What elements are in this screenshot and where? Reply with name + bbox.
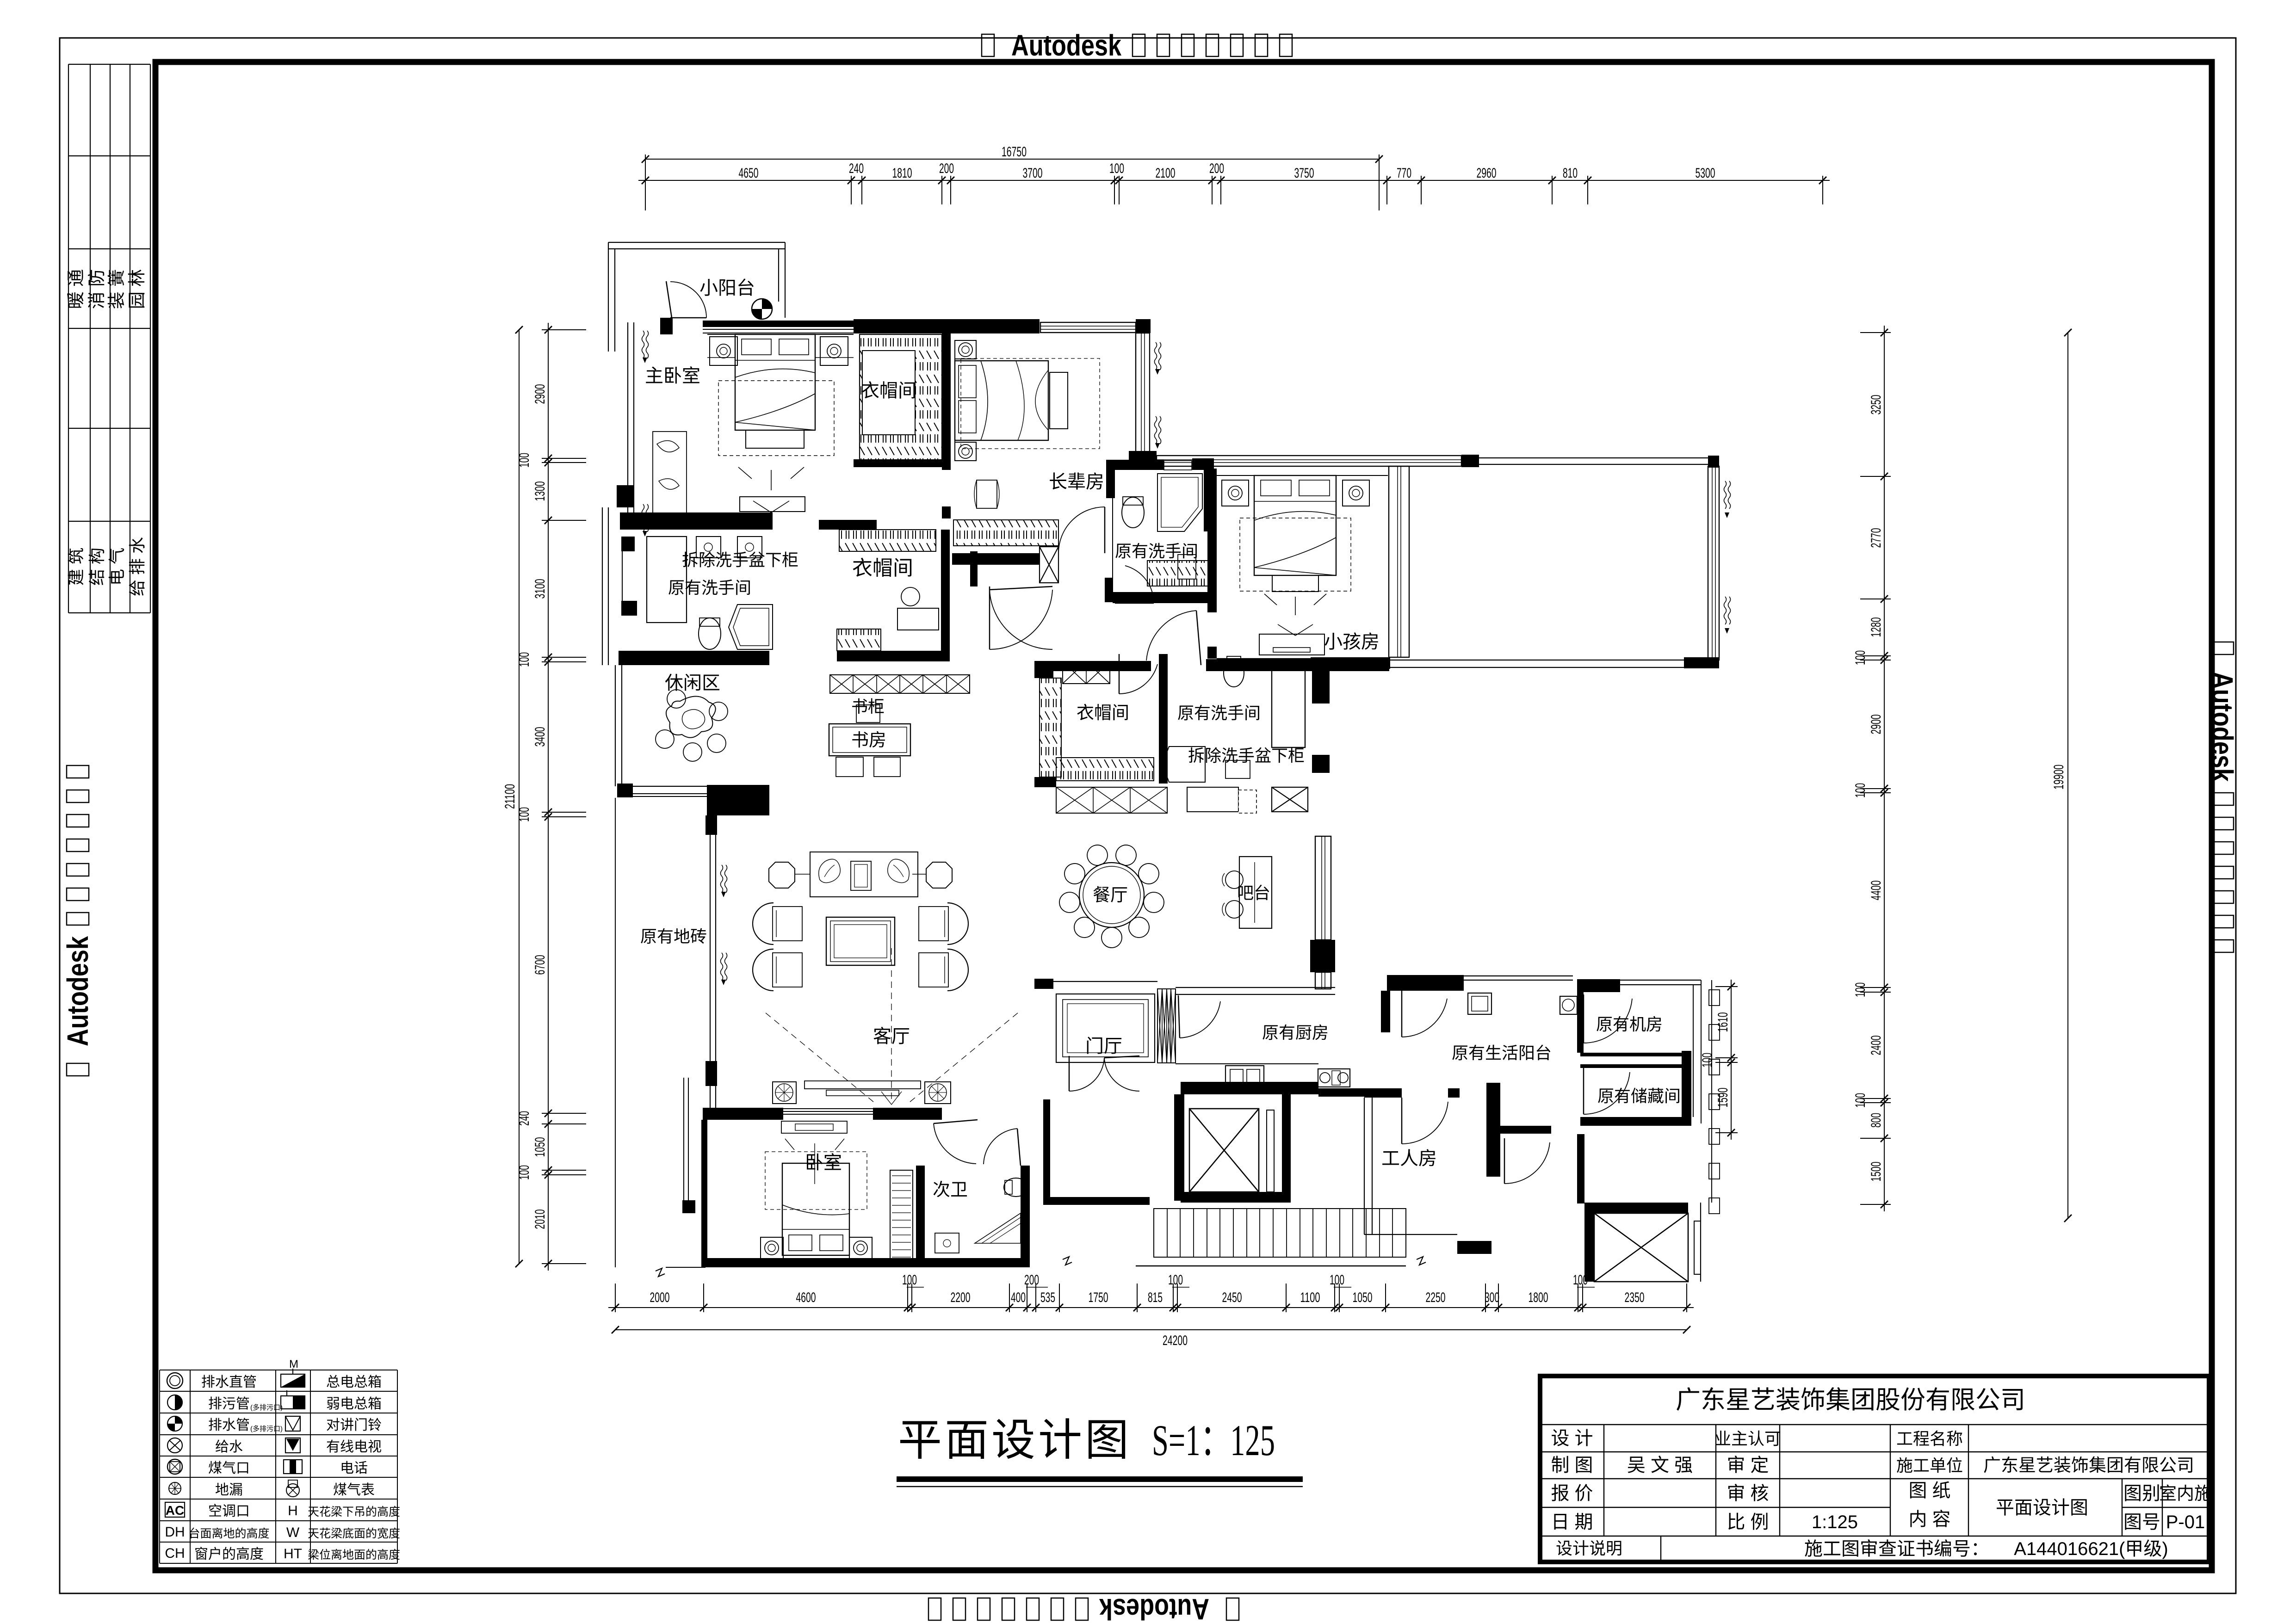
svg-text:图号: 图号	[2123, 1512, 2160, 1532]
svg-text:5300: 5300	[1696, 166, 1715, 181]
svg-text:1050: 1050	[532, 1137, 548, 1157]
svg-text:主卧室: 主卧室	[645, 366, 700, 386]
svg-text:衣帽间: 衣帽间	[852, 557, 913, 580]
svg-text:空调口: 空调口	[208, 1504, 250, 1519]
svg-text:图别: 图别	[2123, 1483, 2160, 1504]
svg-text:21100: 21100	[502, 784, 518, 809]
svg-text:小阳台: 小阳台	[699, 278, 755, 298]
svg-text:排水管: 排水管	[208, 1418, 250, 1433]
svg-text:排污管: 排污管	[208, 1396, 250, 1412]
svg-text:1100: 1100	[1300, 1290, 1320, 1305]
svg-text:100: 100	[1700, 1053, 1715, 1068]
svg-text:HT: HT	[284, 1546, 302, 1561]
svg-text:内 容: 内 容	[1908, 1509, 1950, 1530]
svg-text:原有洗手间: 原有洗手间	[668, 578, 751, 597]
svg-text:Autodesk: Autodesk	[61, 936, 94, 1046]
svg-text:拆除洗手盆下柜: 拆除洗手盆下柜	[1188, 746, 1305, 765]
svg-text:3750: 3750	[1294, 166, 1314, 181]
svg-text:吧台: 吧台	[1237, 883, 1270, 902]
svg-text:100: 100	[1330, 1272, 1344, 1288]
svg-text:书房: 书房	[851, 731, 886, 750]
svg-text:日 期: 日 期	[1551, 1512, 1593, 1532]
svg-text:2350: 2350	[1625, 1290, 1645, 1305]
svg-text:次卫: 次卫	[933, 1180, 968, 1200]
svg-text:4400: 4400	[1869, 881, 1884, 901]
svg-text:广东星艺装饰集团有限公司: 广东星艺装饰集团有限公司	[1983, 1456, 2194, 1475]
svg-text:3700: 3700	[1023, 166, 1043, 181]
svg-text:100: 100	[517, 807, 532, 822]
svg-text:结 构: 结 构	[87, 548, 106, 586]
svg-text:原有洗手间: 原有洗手间	[1115, 542, 1198, 561]
svg-text:2010: 2010	[532, 1210, 548, 1229]
svg-text:建 筑: 建 筑	[67, 548, 86, 586]
svg-text:书柜: 书柜	[851, 697, 885, 716]
svg-text:535: 535	[1040, 1290, 1055, 1305]
svg-text:台面离地的高度: 台面离地的高度	[188, 1527, 269, 1540]
svg-text:1300: 1300	[532, 481, 548, 501]
svg-text:300: 300	[1485, 1290, 1499, 1305]
svg-text:业主认可: 业主认可	[1714, 1429, 1781, 1448]
svg-text:1280: 1280	[1869, 617, 1884, 637]
svg-text:A144016621(甲级): A144016621(甲级)	[2014, 1539, 2168, 1559]
svg-text:4600: 4600	[796, 1290, 816, 1305]
svg-text:消 防: 消 防	[87, 269, 107, 309]
svg-text:(多排污口): (多排污口)	[250, 1404, 283, 1412]
svg-text:2900: 2900	[1869, 715, 1884, 734]
svg-text:770: 770	[1397, 166, 1411, 181]
svg-text:餐厅: 餐厅	[1093, 886, 1128, 905]
svg-text:AC: AC	[166, 1503, 184, 1518]
svg-text:园 林: 园 林	[128, 269, 147, 309]
svg-text:100: 100	[517, 652, 532, 667]
svg-text:地漏: 地漏	[215, 1482, 243, 1498]
svg-text:图 纸: 图 纸	[1908, 1481, 1950, 1501]
svg-text:815: 815	[1148, 1290, 1163, 1305]
svg-text:2770: 2770	[1869, 528, 1884, 548]
svg-text:煤气口: 煤气口	[208, 1461, 250, 1476]
svg-text:室内施: 室内施	[2159, 1484, 2212, 1504]
svg-text:平面设计图: 平面设计图	[1996, 1498, 2088, 1518]
svg-text:对讲门铃: 对讲门铃	[326, 1418, 382, 1433]
svg-text:有线电视: 有线电视	[326, 1439, 382, 1455]
svg-text:2200: 2200	[951, 1290, 971, 1305]
svg-text:100: 100	[1853, 982, 1868, 997]
svg-text:总电总箱: 总电总箱	[326, 1375, 382, 1390]
svg-text:100: 100	[1109, 161, 1124, 176]
svg-text:2400: 2400	[1869, 1036, 1884, 1055]
svg-text:3100: 3100	[532, 579, 548, 599]
svg-text:100: 100	[1853, 1093, 1868, 1108]
svg-text:2250: 2250	[1426, 1290, 1446, 1305]
svg-text:平面设计图: 平面设计图	[898, 1416, 1132, 1465]
svg-text:240: 240	[849, 161, 864, 176]
svg-text:客厅: 客厅	[873, 1026, 910, 1047]
svg-text:暖 通: 暖 通	[67, 269, 86, 309]
svg-text:原有生活阳台: 原有生活阳台	[1452, 1043, 1552, 1062]
svg-text:W: W	[286, 1525, 300, 1540]
svg-text:200: 200	[939, 161, 954, 176]
svg-text:4650: 4650	[739, 166, 759, 181]
svg-text:设计说明: 设计说明	[1556, 1539, 1622, 1558]
svg-text:100: 100	[1168, 1272, 1183, 1288]
svg-text:1800: 1800	[1529, 1290, 1548, 1305]
svg-text:审 核: 审 核	[1727, 1483, 1769, 1504]
svg-text:CH: CH	[165, 1546, 185, 1561]
svg-text:原有洗手间: 原有洗手间	[1177, 704, 1261, 722]
svg-text:休闲区: 休闲区	[665, 673, 720, 693]
svg-text:衣帽间: 衣帽间	[861, 381, 916, 401]
svg-text:2900: 2900	[532, 384, 548, 404]
svg-text:工人房: 工人房	[1381, 1148, 1437, 1169]
svg-text:施工图审查证书编号：: 施工图审查证书编号：	[1804, 1539, 1989, 1559]
svg-text:2000: 2000	[650, 1290, 670, 1305]
svg-text:6700: 6700	[532, 955, 548, 975]
svg-text:200: 200	[1209, 161, 1224, 176]
svg-text:长辈房: 长辈房	[1049, 472, 1104, 492]
svg-text:窗户的高度: 窗户的高度	[194, 1547, 264, 1562]
svg-text:(多排污口): (多排污口)	[250, 1425, 283, 1433]
svg-text:比 例: 比 例	[1727, 1512, 1769, 1532]
svg-text:1610: 1610	[1715, 1012, 1731, 1032]
svg-text:100: 100	[902, 1272, 917, 1288]
svg-text:100: 100	[1853, 650, 1868, 665]
svg-text:审 定: 审 定	[1727, 1455, 1769, 1475]
svg-text:1810: 1810	[892, 166, 912, 181]
svg-text:卧室: 卧室	[805, 1153, 842, 1173]
svg-text:100: 100	[517, 1165, 532, 1180]
svg-text:H: H	[288, 1503, 298, 1518]
svg-text:3250: 3250	[1869, 395, 1884, 415]
svg-text:广东星艺装饰集团股份有限公司: 广东星艺装饰集团股份有限公司	[1676, 1386, 2025, 1414]
svg-text:拆除洗手盆下柜: 拆除洗手盆下柜	[682, 550, 798, 569]
svg-text:煤气表: 煤气表	[333, 1482, 375, 1498]
svg-text:200: 200	[1024, 1272, 1039, 1288]
svg-text:P-01: P-01	[2166, 1512, 2205, 1532]
svg-text:天花梁底面的宽度: 天花梁底面的宽度	[308, 1527, 400, 1540]
svg-text:2960: 2960	[1477, 166, 1497, 181]
svg-text:电 气: 电 气	[107, 548, 126, 586]
svg-text:1500: 1500	[1869, 1162, 1884, 1182]
svg-text:梁位离地面的高度: 梁位离地面的高度	[308, 1549, 400, 1561]
svg-text:400: 400	[1011, 1290, 1026, 1305]
svg-text:1750: 1750	[1089, 1290, 1108, 1305]
svg-text:报 价: 报 价	[1551, 1483, 1593, 1504]
svg-text:2450: 2450	[1222, 1290, 1242, 1305]
svg-text:M: M	[289, 1358, 298, 1370]
svg-text:设 计: 设 计	[1551, 1428, 1593, 1449]
svg-text:810: 810	[1563, 166, 1578, 181]
svg-text:1050: 1050	[1353, 1290, 1373, 1305]
svg-text:800: 800	[1869, 1113, 1884, 1128]
svg-text:吴 文 强: 吴 文 强	[1627, 1455, 1693, 1475]
svg-text:240: 240	[517, 1111, 532, 1126]
svg-text:原有机房: 原有机房	[1596, 1015, 1663, 1034]
svg-text:工程名称: 工程名称	[1896, 1429, 1963, 1448]
svg-text:电话: 电话	[340, 1461, 368, 1476]
svg-text:装 簧: 装 簧	[107, 269, 127, 309]
svg-text:Autodesk: Autodesk	[1011, 29, 1121, 62]
svg-text:1:125: 1:125	[1812, 1512, 1858, 1532]
svg-text:2100: 2100	[1156, 166, 1176, 181]
svg-text:衣帽间: 衣帽间	[1077, 704, 1129, 723]
svg-text:24200: 24200	[1163, 1333, 1188, 1348]
svg-text:给 排 水: 给 排 水	[128, 537, 147, 596]
svg-text:排水直管: 排水直管	[201, 1375, 257, 1390]
svg-text:给水: 给水	[215, 1439, 243, 1455]
svg-text:3400: 3400	[532, 727, 548, 747]
svg-text:天花梁下吊的高度: 天花梁下吊的高度	[308, 1506, 400, 1518]
svg-text:弱电总箱: 弱电总箱	[326, 1396, 382, 1412]
svg-text:1590: 1590	[1715, 1088, 1731, 1108]
svg-text:原有地砖: 原有地砖	[640, 927, 707, 946]
svg-text:Autodesk: Autodesk	[2206, 672, 2239, 782]
svg-text:门厅: 门厅	[1085, 1036, 1122, 1056]
svg-text:100: 100	[517, 453, 532, 468]
svg-text:100: 100	[1853, 783, 1868, 798]
svg-text:16750: 16750	[1002, 144, 1027, 160]
svg-text:Autodesk: Autodesk	[1099, 1592, 1209, 1623]
svg-text:原有储藏间: 原有储藏间	[1597, 1086, 1681, 1105]
svg-text:施工单位: 施工单位	[1896, 1456, 1963, 1475]
svg-text:原有厨房: 原有厨房	[1262, 1023, 1329, 1042]
svg-text:制 图: 制 图	[1551, 1455, 1593, 1475]
svg-text:DH: DH	[165, 1524, 185, 1540]
svg-text:19900: 19900	[2051, 765, 2067, 790]
svg-text:小孩房: 小孩房	[1324, 632, 1380, 652]
svg-text:S=1：125: S=1：125	[1152, 1416, 1275, 1465]
